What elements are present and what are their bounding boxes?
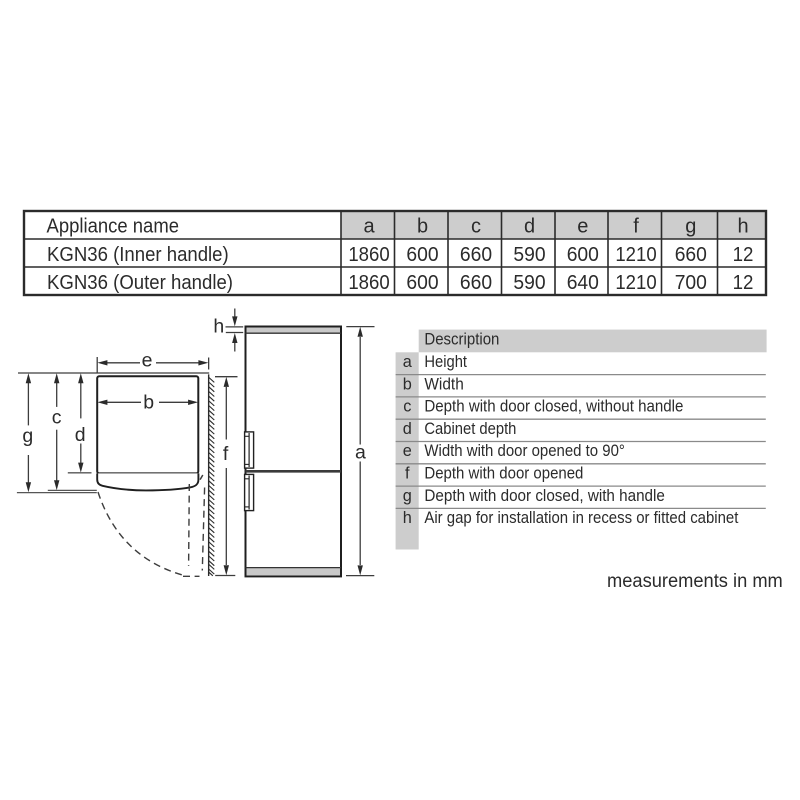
svg-text:f: f <box>405 465 410 483</box>
svg-text:590: 590 <box>513 272 545 294</box>
svg-text:d: d <box>524 216 535 238</box>
svg-text:a: a <box>355 442 366 464</box>
svg-text:e: e <box>403 442 412 460</box>
svg-text:1210: 1210 <box>615 272 656 294</box>
svg-text:1860: 1860 <box>348 244 389 266</box>
svg-text:g: g <box>22 425 33 447</box>
svg-text:12: 12 <box>733 272 754 294</box>
svg-text:b: b <box>417 216 428 238</box>
svg-text:Depth with door opened: Depth with door opened <box>424 465 583 483</box>
svg-text:600: 600 <box>406 272 438 294</box>
svg-text:660: 660 <box>675 244 707 266</box>
svg-text:d: d <box>403 420 412 438</box>
svg-text:b: b <box>403 375 412 393</box>
svg-text:g: g <box>685 216 696 238</box>
svg-text:c: c <box>403 398 411 416</box>
svg-text:Description: Description <box>424 330 499 348</box>
svg-text:Width with door opened to 90°: Width with door opened to 90° <box>424 442 625 460</box>
svg-text:12: 12 <box>733 244 754 266</box>
svg-text:d: d <box>75 424 86 446</box>
svg-text:640: 640 <box>567 272 599 294</box>
svg-text:Depth with door closed, withou: Depth with door closed, without handle <box>424 398 683 416</box>
svg-text:h: h <box>213 316 224 338</box>
svg-text:c: c <box>52 407 62 429</box>
svg-text:c: c <box>471 216 481 238</box>
svg-text:KGN36 (Inner handle): KGN36 (Inner handle) <box>47 244 229 266</box>
svg-text:g: g <box>403 487 412 505</box>
svg-text:Height: Height <box>424 353 467 371</box>
svg-text:1210: 1210 <box>615 244 656 266</box>
svg-text:f: f <box>223 443 229 465</box>
svg-text:b: b <box>143 391 154 413</box>
svg-text:KGN36 (Outer handle): KGN36 (Outer handle) <box>47 272 233 294</box>
svg-text:Appliance name: Appliance name <box>47 216 180 238</box>
svg-text:h: h <box>737 216 748 238</box>
svg-text:e: e <box>142 350 153 372</box>
svg-text:a: a <box>403 353 413 371</box>
svg-text:e: e <box>577 216 588 238</box>
svg-text:f: f <box>633 216 639 238</box>
svg-text:1860: 1860 <box>348 272 389 294</box>
svg-text:600: 600 <box>567 244 599 266</box>
svg-text:Cabinet depth: Cabinet depth <box>424 420 516 438</box>
svg-text:700: 700 <box>675 272 707 294</box>
svg-text:Width: Width <box>424 375 463 393</box>
svg-text:Air gap for installation in re: Air gap for installation in recess or fi… <box>424 509 738 527</box>
svg-text:600: 600 <box>406 244 438 266</box>
svg-text:h: h <box>403 509 412 527</box>
svg-text:Depth with door closed, with h: Depth with door closed, with handle <box>424 487 665 505</box>
svg-text:660: 660 <box>460 272 492 294</box>
svg-text:a: a <box>363 216 375 238</box>
svg-text:590: 590 <box>513 244 545 266</box>
svg-text:660: 660 <box>460 244 492 266</box>
svg-text:measurements in mm: measurements in mm <box>607 571 783 592</box>
